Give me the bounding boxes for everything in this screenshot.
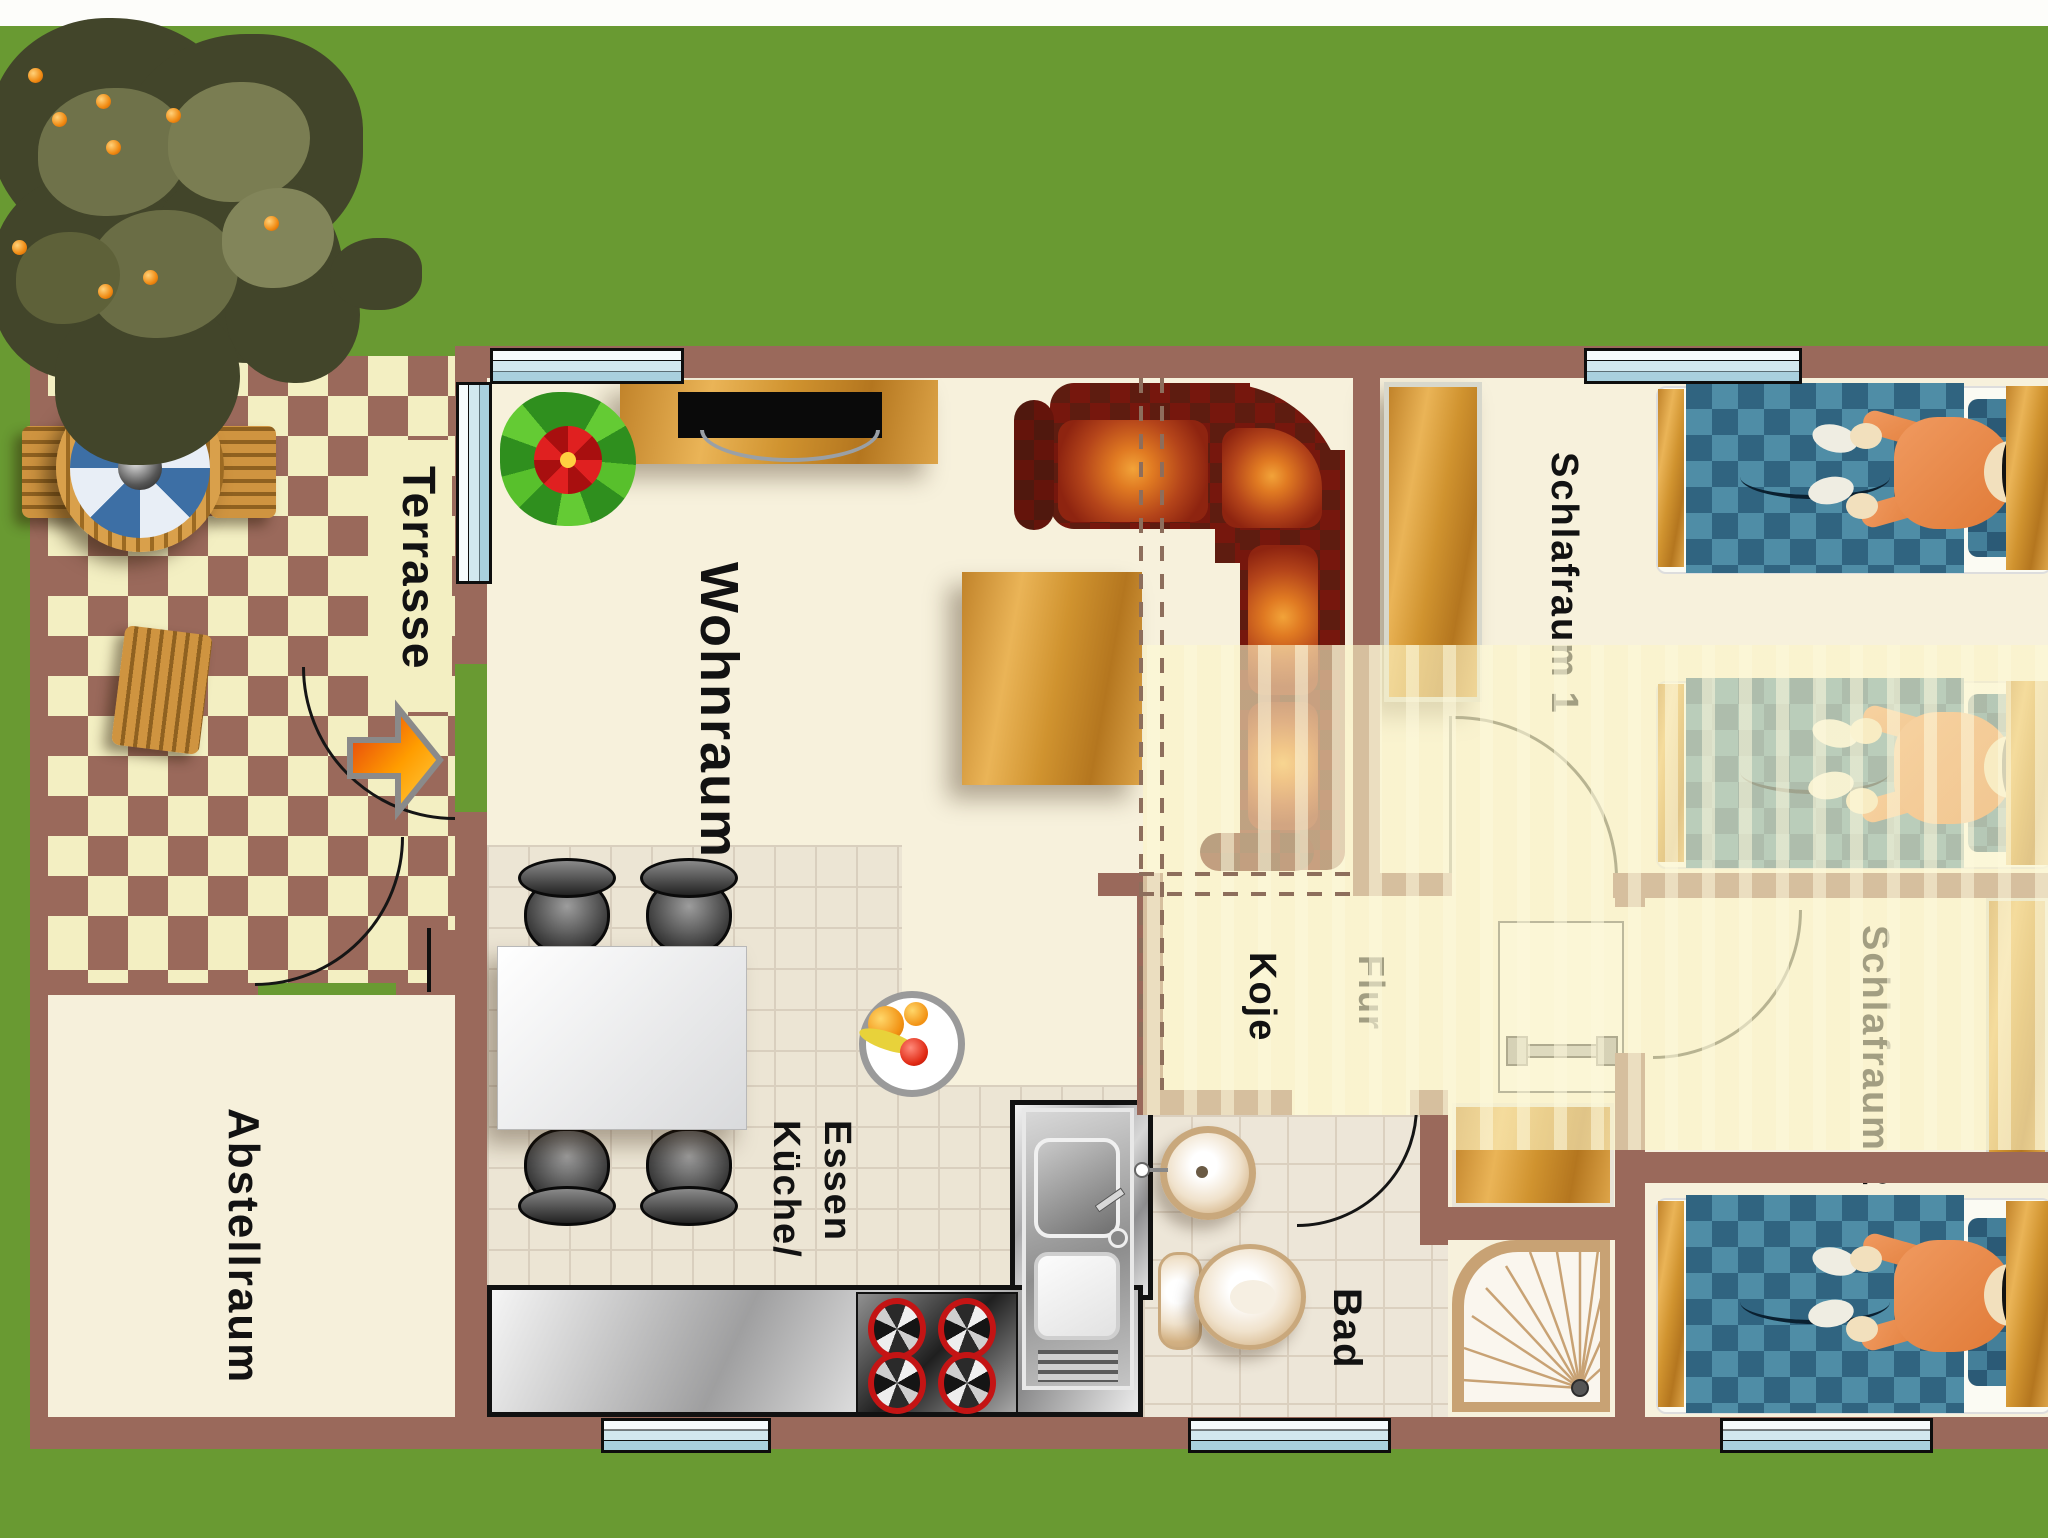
wall-flur-right-lower (1615, 1053, 1645, 1417)
abstellraum-door-leaf (427, 928, 431, 992)
schlafraum1-label: Schlafraum 1 (1542, 452, 1585, 715)
dining-chair-2-base (640, 858, 738, 898)
bed1-person-hand1 (1850, 423, 1882, 449)
window-bottom-schlafraum2 (1720, 1418, 1933, 1453)
window-bottom-bad (1188, 1418, 1391, 1453)
dining-chair-3-base (518, 1186, 616, 1226)
sink-drainboard (1038, 1350, 1118, 1382)
tree-fruit-1 (28, 68, 43, 83)
stove-burner-4 (938, 1352, 996, 1414)
bed2-side-shelf (2006, 681, 2048, 865)
sofa-cushion-3 (1248, 545, 1318, 695)
tree-fruit-2 (96, 94, 111, 109)
floor-plan: Terrasse Abstellraum (0, 0, 2048, 1538)
dining-table (497, 946, 747, 1130)
sink-basin-upper (1034, 1138, 1120, 1238)
fruit-orange-small (904, 1002, 928, 1026)
bed1-footboard (1658, 389, 1684, 567)
bed3-person-hand1 (1850, 1246, 1882, 1272)
sofa-cushion-1 (1058, 420, 1208, 522)
wardrobe-schlafraum1 (1384, 382, 1482, 702)
koje-label: Koje (1240, 952, 1283, 1042)
tree-fruit-5 (106, 140, 121, 155)
window-bottom-kitchen (601, 1418, 771, 1453)
bathroom-faucet-knob (1134, 1162, 1150, 1178)
sink-basin-lower (1034, 1252, 1120, 1340)
wohnraum-label: Wohnraum (688, 562, 750, 859)
tree-fruit-4 (52, 112, 67, 127)
bed2-person-hand2 (1846, 788, 1878, 814)
window-left (456, 382, 492, 584)
bed2-person-hand1 (1850, 718, 1882, 744)
sink-faucet-knob (1108, 1228, 1128, 1248)
tree-fruit-3 (166, 108, 181, 123)
tree-canopy-7 (330, 238, 422, 310)
stove-burner-3 (868, 1352, 926, 1414)
sofa-cushion-4 (1248, 702, 1318, 830)
bed1-side-shelf (2006, 386, 2048, 570)
shower-spray-icon (1452, 1240, 1610, 1412)
wall-bad-right (1420, 1090, 1448, 1245)
plant-flower-center (560, 452, 576, 468)
hall-chest (1452, 1103, 1614, 1207)
sofa-armrest-bottom (1200, 833, 1314, 871)
wall-left-lower (455, 812, 487, 1449)
entrance-arrow-icon (340, 698, 450, 823)
wall-bad-top-left (1137, 1090, 1292, 1115)
kueche-essen-label: Küche/ Essen (764, 1120, 858, 1259)
wall-top (455, 346, 2048, 378)
abstellraum-label: Abstellraum (218, 1108, 268, 1384)
sliding-door-handle-end1 (1506, 1036, 1528, 1066)
tree-fruit-7 (98, 284, 113, 299)
bathroom-sink (1160, 1126, 1256, 1220)
top-white-band (0, 0, 2048, 26)
wall-schlafraum2-inner (1645, 1152, 2048, 1183)
dining-chair-1-base (518, 858, 616, 898)
stove-burner-1 (868, 1298, 926, 1360)
koje-dash-left-2 (1160, 378, 1164, 1090)
coffee-table (962, 572, 1142, 785)
stove-burner-2 (938, 1298, 996, 1360)
wardrobe-schlafraum2-corner (1986, 898, 2048, 1155)
terrasse-label: Terrasse (392, 466, 446, 670)
tree-fruit-6 (12, 240, 27, 255)
sofa-armrest-left (1014, 400, 1054, 530)
bathroom-sink-drain (1196, 1166, 1208, 1178)
koje-dash-bottom-2 (1139, 892, 1357, 896)
bed3-person-hand2 (1846, 1316, 1878, 1342)
bed1-person-hand2 (1846, 493, 1878, 519)
wall-schlafraum-divider (1613, 873, 2048, 898)
hall-sliding-door-panel (1498, 921, 1624, 1093)
wall-koje-stub (1098, 873, 1140, 896)
schlafraum1-door-leaf (1449, 716, 1452, 876)
koje-dash-left-1 (1139, 378, 1143, 1090)
schlafraum2-label: Schlafraum 2 (1853, 925, 1896, 1188)
terrace-paving-lower (48, 930, 427, 983)
wall-schlafraum1-left (1353, 378, 1380, 896)
koje-dash-bottom-1 (1139, 872, 1357, 876)
window-top-left (490, 348, 684, 384)
flur-label: Flur (1350, 955, 1392, 1031)
kueche-label-line1: Küche/ (764, 1120, 807, 1259)
terrace-corner-patch (427, 930, 455, 995)
terrace-chair-bottom (111, 625, 213, 755)
window-top-right (1584, 348, 1802, 384)
wall-shower-top (1448, 1207, 1615, 1240)
kueche-label-line2: Essen (815, 1120, 858, 1259)
bad-label: Bad (1324, 1288, 1369, 1370)
bed3-side-shelf (2006, 1201, 2048, 1407)
tree-fruit-8 (143, 270, 158, 285)
fruit-tomato (900, 1038, 928, 1066)
bed3-footboard (1658, 1201, 1684, 1407)
bed2-footboard (1658, 684, 1684, 862)
toilet-lid-center (1230, 1280, 1276, 1314)
dining-chair-4-base (640, 1186, 738, 1226)
wall-schlafraum1-stub (1380, 873, 1452, 896)
tree-fruit-9 (264, 216, 279, 231)
